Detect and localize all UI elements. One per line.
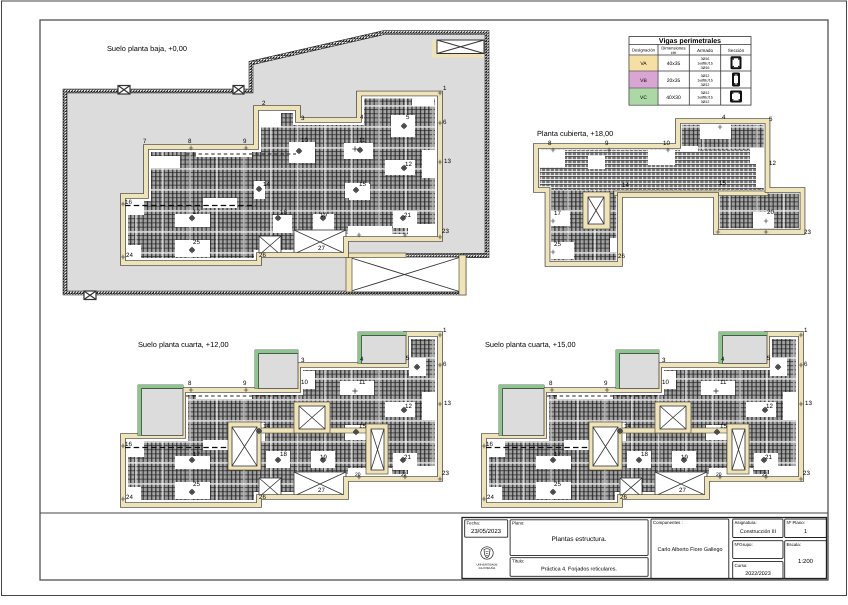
svg-text:1eØ8c/15: 1eØ8c/15	[697, 96, 713, 100]
svg-text:VB: VB	[640, 78, 647, 84]
svg-text:40x35: 40x35	[667, 61, 681, 67]
svg-text:Nº Plano:: Nº Plano:	[787, 520, 805, 525]
svg-text:16: 16	[125, 441, 132, 448]
svg-text:10: 10	[663, 140, 670, 147]
svg-text:1eØ8c/15: 1eØ8c/15	[697, 79, 713, 83]
svg-text:9: 9	[243, 138, 247, 145]
svg-text:Plantas estructura.: Plantas estructura.	[552, 536, 607, 543]
svg-text:26: 26	[259, 252, 266, 259]
svg-text:20x35: 20x35	[667, 78, 681, 84]
svg-text:1eØ8c/15: 1eØ8c/15	[697, 62, 713, 66]
svg-text:4: 4	[722, 114, 726, 121]
svg-text:23: 23	[442, 470, 449, 477]
svg-text:10: 10	[301, 137, 308, 144]
svg-text:14: 14	[263, 181, 270, 188]
svg-text:3Ø16: 3Ø16	[701, 66, 710, 70]
svg-text:12: 12	[769, 160, 776, 167]
svg-text:5: 5	[406, 355, 410, 362]
svg-text:27: 27	[318, 487, 325, 494]
svg-text:18: 18	[280, 209, 287, 216]
svg-text:NºGrupo:: NºGrupo:	[735, 542, 753, 547]
svg-text:3Ø12: 3Ø12	[701, 83, 710, 87]
svg-text:3: 3	[301, 115, 305, 122]
svg-text:16: 16	[125, 199, 132, 206]
svg-text:VC: VC	[640, 95, 647, 101]
svg-text:26: 26	[259, 494, 266, 501]
svg-text:22: 22	[401, 472, 407, 478]
svg-text:1: 1	[804, 529, 807, 535]
svg-text:Asignatura:: Asignatura:	[735, 520, 757, 525]
svg-text:9: 9	[605, 140, 609, 147]
svg-text:11: 11	[359, 137, 366, 144]
svg-text:3Ø12: 3Ø12	[701, 74, 710, 78]
svg-text:4: 4	[360, 114, 364, 121]
svg-text:5: 5	[406, 114, 410, 121]
svg-text:17: 17	[193, 451, 200, 458]
svg-text:15: 15	[359, 181, 366, 188]
svg-text:19: 19	[320, 212, 327, 219]
svg-text:cm: cm	[671, 50, 677, 55]
svg-text:27: 27	[318, 245, 325, 252]
svg-text:14: 14	[622, 182, 629, 189]
svg-text:3: 3	[301, 357, 305, 364]
svg-text:19: 19	[320, 454, 327, 461]
svg-text:7: 7	[143, 138, 147, 145]
svg-text:8: 8	[188, 380, 192, 387]
svg-text:17: 17	[193, 209, 200, 216]
svg-text:25: 25	[193, 481, 200, 488]
svg-text:8: 8	[188, 138, 192, 145]
svg-text:Planta cubierta, +18,00: Planta cubierta, +18,00	[537, 129, 613, 138]
svg-text:11: 11	[359, 379, 366, 386]
svg-text:20: 20	[355, 472, 361, 478]
svg-text:Suelo planta cuarta, +15,00: Suelo planta cuarta, +15,00	[485, 340, 576, 349]
svg-text:21: 21	[404, 454, 411, 461]
svg-text:20: 20	[767, 209, 774, 216]
svg-text:Título:: Título:	[512, 559, 524, 564]
svg-text:Vigas perimetrales: Vigas perimetrales	[659, 37, 721, 45]
svg-text:3Ø12: 3Ø12	[701, 100, 710, 104]
svg-text:1: 1	[443, 85, 447, 92]
svg-text:Suelo planta baja, +0,00: Suelo planta baja, +0,00	[107, 44, 187, 53]
svg-text:15: 15	[719, 180, 726, 187]
svg-text:Designación: Designación	[632, 48, 656, 53]
svg-text:1:200: 1:200	[798, 558, 814, 565]
svg-text:18: 18	[280, 451, 287, 458]
svg-text:24: 24	[126, 494, 133, 501]
svg-text:12: 12	[405, 403, 412, 410]
svg-text:25: 25	[193, 239, 200, 246]
svg-text:25: 25	[554, 241, 561, 248]
svg-text:6: 6	[443, 361, 447, 368]
svg-text:VA: VA	[640, 61, 647, 67]
svg-text:2022/2023: 2022/2023	[745, 571, 770, 577]
svg-text:Escala:: Escala:	[787, 542, 801, 547]
svg-text:14: 14	[263, 423, 270, 430]
svg-text:Carlo Alberto Fiore Gallego: Carlo Alberto Fiore Gallego	[657, 547, 722, 553]
svg-text:40X30: 40X30	[666, 95, 681, 101]
svg-text:2: 2	[262, 100, 266, 107]
svg-text:26: 26	[618, 253, 625, 260]
svg-text:5: 5	[769, 116, 773, 123]
svg-text:23: 23	[804, 229, 811, 236]
svg-text:Fecha:: Fecha:	[467, 521, 480, 526]
svg-text:Plano:: Plano:	[512, 521, 524, 526]
svg-text:13: 13	[444, 400, 451, 407]
svg-text:8: 8	[548, 140, 552, 147]
svg-text:4: 4	[360, 356, 364, 363]
svg-text:21: 21	[404, 212, 411, 219]
svg-text:13: 13	[444, 158, 451, 165]
svg-text:15: 15	[359, 423, 366, 430]
svg-text:3Ø16: 3Ø16	[701, 57, 710, 61]
svg-text:Construcción III: Construcción III	[740, 529, 776, 535]
svg-text:9: 9	[243, 380, 247, 387]
svg-text:10: 10	[301, 379, 308, 386]
svg-text:Armado: Armado	[697, 48, 714, 53]
svg-text:3Ø12: 3Ø12	[701, 91, 710, 95]
svg-text:24: 24	[126, 252, 133, 259]
svg-text:23: 23	[442, 228, 449, 235]
svg-text:Práctica 4. Forjados reticular: Práctica 4. Forjados reticulares.	[541, 567, 617, 573]
svg-text:6: 6	[443, 119, 447, 126]
svg-text:Componentes :: Componentes :	[653, 520, 683, 525]
svg-text:1: 1	[443, 327, 447, 334]
svg-text:23/05/2023: 23/05/2023	[471, 528, 502, 535]
svg-text:17: 17	[554, 210, 561, 217]
svg-text:DA CORUÑA: DA CORUÑA	[479, 566, 496, 570]
svg-text:12: 12	[405, 161, 412, 168]
svg-text:Suelo planta cuarta, +12,00: Suelo planta cuarta, +12,00	[138, 340, 229, 349]
svg-text:Curso:: Curso:	[735, 563, 748, 568]
svg-text:Sección: Sección	[728, 48, 745, 53]
